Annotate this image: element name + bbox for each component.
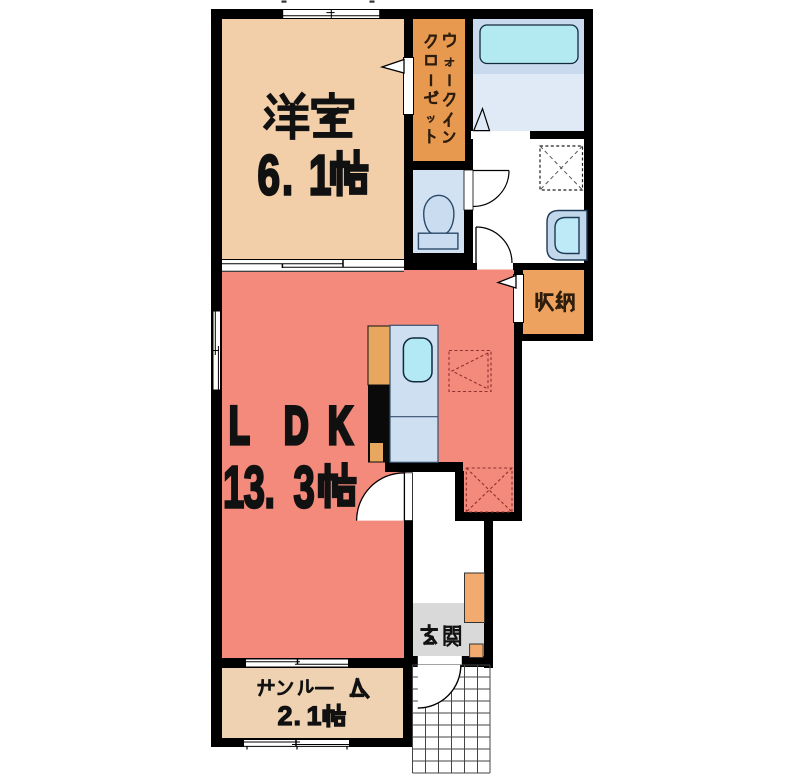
svg-text:2.1: 2.1 [278, 701, 322, 731]
svg-text:13.3: 13.3 [223, 454, 315, 520]
svg-text:LDK: LDK [229, 397, 353, 455]
